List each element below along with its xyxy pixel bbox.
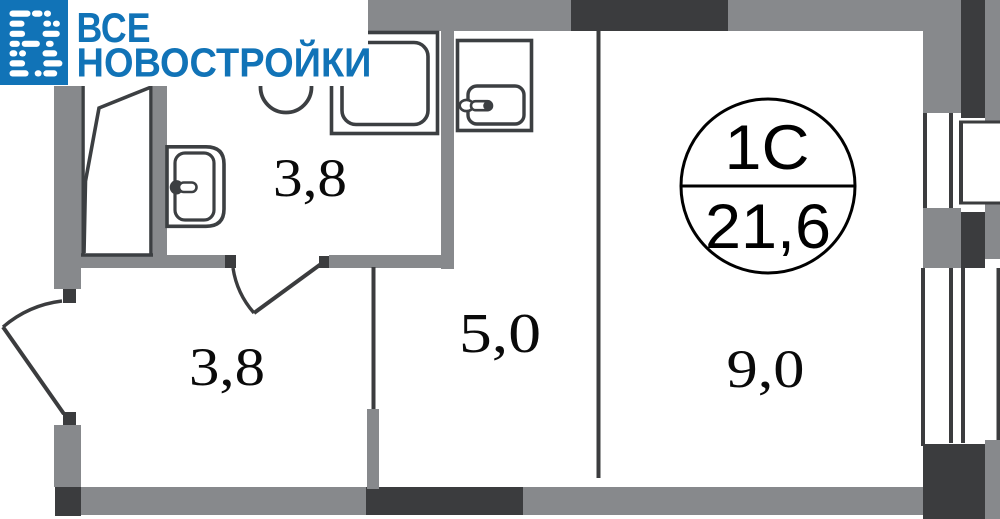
svg-text:9,0: 9,0 <box>727 339 805 399</box>
svg-text:3,8: 3,8 <box>189 337 265 397</box>
svg-text:3,8: 3,8 <box>273 148 347 208</box>
svg-text:НОВОСТРОЙКИ: НОВОСТРОЙКИ <box>77 40 372 86</box>
svg-text:21,6: 21,6 <box>705 192 831 262</box>
svg-text:5,0: 5,0 <box>459 303 541 365</box>
svg-text:1С: 1С <box>725 113 810 183</box>
